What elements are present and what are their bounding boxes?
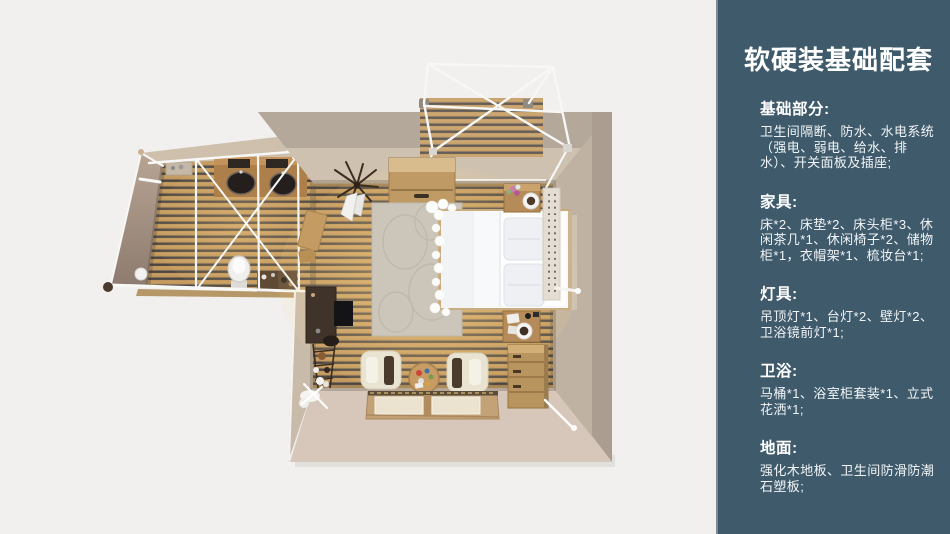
table-top xyxy=(409,363,439,393)
flower xyxy=(429,375,434,380)
laptop xyxy=(334,301,353,326)
cabinet-top xyxy=(389,158,455,172)
dresser-side xyxy=(544,345,548,408)
faucet-left xyxy=(239,170,242,173)
bottle xyxy=(262,275,267,280)
section-flooring: 地面: 强化木地板、卫生间防滑防潮石塑板; xyxy=(760,440,936,494)
camera-item xyxy=(525,313,531,319)
section-lighting-heading: 灯具: xyxy=(760,286,936,303)
section-bathroom: 卫浴: 马桶*1、浴室柜套装*1、立式花洒*1; xyxy=(760,363,936,417)
section-furniture-body: 床*2、床垫*2、床头柜*3、休闲茶几*1、休闲椅子*2、储物柜*1，衣帽架*1… xyxy=(760,217,936,264)
sink-left-icon xyxy=(227,172,255,194)
fluff xyxy=(448,204,456,212)
armchair-left xyxy=(361,351,401,389)
chair-cushion xyxy=(452,358,462,388)
rack-item xyxy=(313,367,319,373)
section-basics-heading: 基础部分: xyxy=(760,101,936,118)
shelf-item xyxy=(179,165,184,170)
shelf-item xyxy=(171,166,175,170)
canopy-foot xyxy=(429,148,437,155)
sphere-lamp-icon xyxy=(135,268,147,280)
chair-cushion xyxy=(384,356,394,385)
flower xyxy=(507,190,512,195)
fluff xyxy=(432,251,440,259)
cabinet-handle xyxy=(414,194,429,198)
drawer-handle xyxy=(513,355,521,358)
info-panel: 软硬装基础配套 基础部分: 卫生间隔断、防水、水电系统（强电、弱电、给水、排水）… xyxy=(716,0,950,534)
flower xyxy=(416,370,422,376)
dresser xyxy=(508,345,548,408)
armchair-right xyxy=(447,353,488,392)
flower xyxy=(426,382,430,386)
panel-title: 软硬装基础配套 xyxy=(744,44,936,77)
fluff xyxy=(432,224,440,232)
section-bathroom-body: 马桶*1、浴室柜套装*1、立式花洒*1; xyxy=(760,386,936,417)
fluff xyxy=(442,308,450,316)
desk-top xyxy=(306,287,336,343)
small-item xyxy=(533,312,539,317)
tatami-platform xyxy=(366,391,499,419)
sink-right-icon xyxy=(270,173,296,195)
desk-item xyxy=(311,293,315,297)
drawer-handle xyxy=(513,370,521,373)
fluff xyxy=(430,303,440,313)
faucet-shelf-left xyxy=(228,159,250,168)
nightstand-top xyxy=(504,184,540,212)
section-lighting-body: 吊顶灯*1、台灯*2、壁灯*2、卫浴镜前灯*1; xyxy=(760,309,936,340)
coffee xyxy=(520,327,529,336)
fluff xyxy=(434,263,444,273)
section-furniture-heading: 家具: xyxy=(760,194,936,211)
faucet-shelf-right xyxy=(266,159,288,168)
headboard-panel xyxy=(543,188,560,300)
mat xyxy=(432,397,480,414)
section-furniture: 家具: 床*2、床垫*2、床头柜*3、休闲茶几*1、休闲椅子*2、储物柜*1，衣… xyxy=(760,194,936,264)
rack-item xyxy=(324,367,330,373)
page: 软硬装基础配套 基础部分: 卫生间隔断、防水、水电系统（强电、弱电、给水、排水）… xyxy=(0,0,950,534)
bottle xyxy=(271,273,275,277)
panel xyxy=(543,188,560,300)
right-wall-outer xyxy=(592,112,612,462)
double-sink-vanity xyxy=(214,157,307,197)
rack-item xyxy=(318,352,326,360)
flower xyxy=(516,185,521,190)
fluff xyxy=(435,290,445,300)
coffee xyxy=(527,197,535,205)
section-flooring-heading: 地面: xyxy=(760,440,936,457)
frame-foot xyxy=(103,282,113,292)
rod-cap xyxy=(571,425,577,431)
shelf-box xyxy=(166,162,192,175)
rack-item xyxy=(316,377,324,385)
mat-divider xyxy=(424,395,431,416)
rack-hub xyxy=(354,182,360,188)
lamp-head xyxy=(575,288,581,294)
desk-item xyxy=(316,329,321,334)
fluff xyxy=(434,210,444,220)
rack-item xyxy=(323,381,329,387)
nightstand-bottom xyxy=(503,311,540,342)
flower xyxy=(514,190,520,196)
canopy-foot xyxy=(563,144,572,152)
dresser-top xyxy=(508,345,548,353)
floor-plan-rendering xyxy=(0,0,716,534)
desk-chair xyxy=(323,336,339,347)
chair-back xyxy=(469,359,481,385)
section-basics-body: 卫生间隔断、防水、水电系统（强电、弱电、给水、排水）、开关面板及插座; xyxy=(760,124,936,171)
frame-foot xyxy=(138,149,144,155)
coffee-table xyxy=(409,363,439,393)
storage-cabinet xyxy=(389,158,455,205)
flower xyxy=(425,369,430,374)
shower-shelf xyxy=(166,162,192,175)
fluff xyxy=(438,199,448,209)
card xyxy=(507,313,520,324)
section-bathroom-heading: 卫浴: xyxy=(760,363,936,380)
toilet-lid xyxy=(233,258,246,274)
section-flooring-body: 强化木地板、卫生间防滑防潮石塑板; xyxy=(760,463,936,494)
section-lighting: 灯具: 吊顶灯*1、台灯*2、壁灯*2、卫浴镜前灯*1; xyxy=(760,286,936,340)
toilet xyxy=(228,256,250,290)
mat xyxy=(375,397,423,414)
section-basics: 基础部分: 卫生间隔断、防水、水电系统（强电、弱电、给水、排水）、开关面板及插座… xyxy=(760,101,936,171)
blanket xyxy=(441,211,473,308)
chair-back xyxy=(366,357,378,383)
drawer-handle xyxy=(513,385,521,388)
fluff xyxy=(432,278,440,286)
frame-post xyxy=(258,155,259,290)
fluff xyxy=(435,236,445,246)
shelf-board xyxy=(298,249,316,263)
